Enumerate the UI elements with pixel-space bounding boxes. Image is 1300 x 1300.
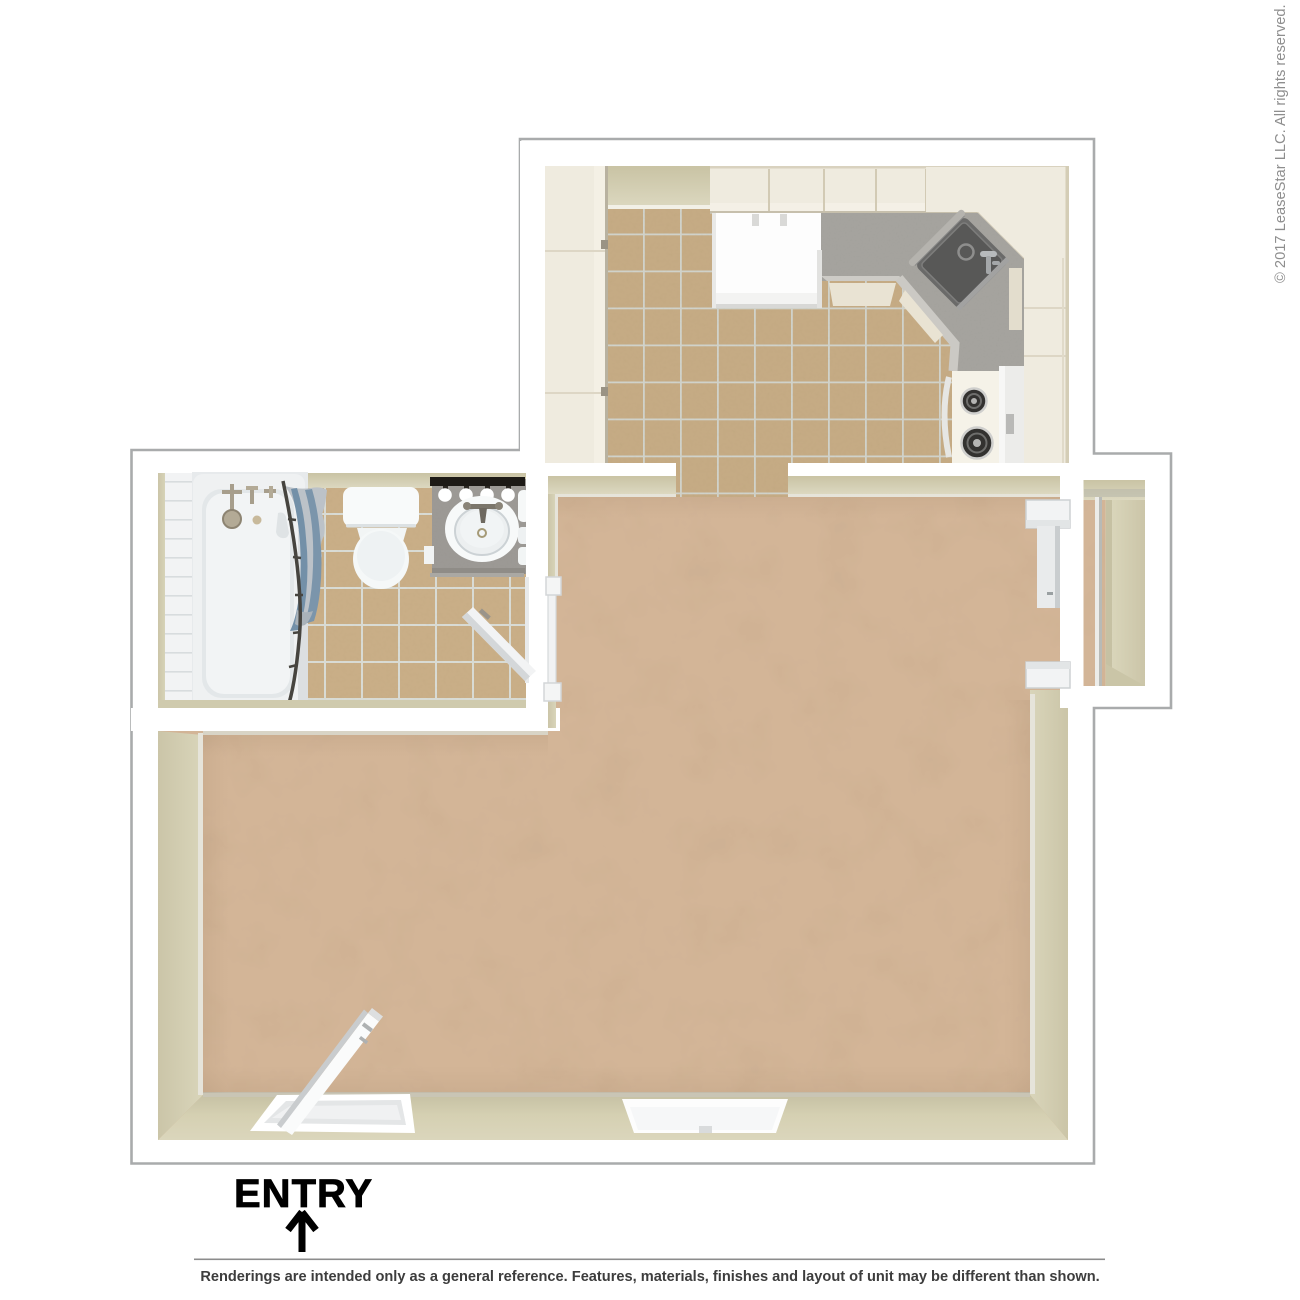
svg-text:Renderings are intended only a: Renderings are intended only as a genera… — [200, 1269, 1099, 1285]
svg-text:© 2017 LeaseStar LLC. All righ: © 2017 LeaseStar LLC. All rights reserve… — [1273, 4, 1289, 283]
svg-text:ENTRY: ENTRY — [234, 1172, 373, 1216]
